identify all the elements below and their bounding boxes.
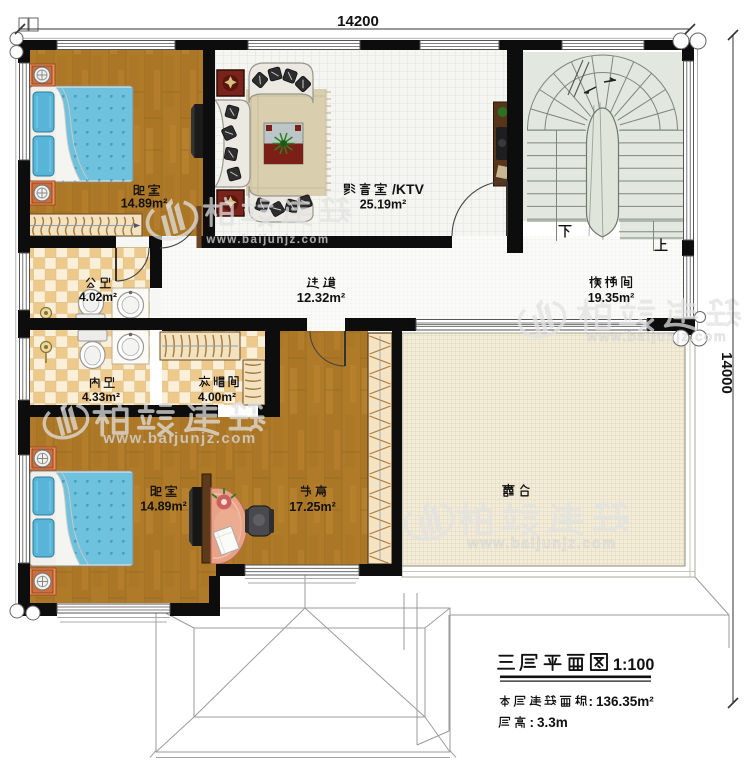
svg-text:4.02m²: 4.02m²: [79, 290, 117, 304]
svg-text:/KTV: /KTV: [392, 181, 425, 197]
svg-text::: :: [589, 694, 594, 709]
svg-text:4.00m²: 4.00m²: [198, 390, 236, 404]
svg-text:4.33m²: 4.33m²: [82, 390, 120, 404]
svg-text:17.25m²: 17.25m²: [289, 500, 336, 514]
svg-text:25.19m²: 25.19m²: [360, 198, 407, 212]
svg-text:14200: 14200: [337, 13, 379, 30]
svg-text:www.baijunjz.com: www.baijunjz.com: [586, 329, 728, 344]
svg-text:1:100: 1:100: [613, 656, 654, 674]
svg-text::: :: [530, 715, 535, 730]
svg-text:14000: 14000: [718, 352, 735, 394]
svg-text:12.32m²: 12.32m²: [297, 290, 346, 305]
svg-text:www.baijunjz.com: www.baijunjz.com: [466, 536, 616, 552]
svg-text:19.35m²: 19.35m²: [588, 291, 635, 305]
svg-text:www.baijunjz.com: www.baijunjz.com: [205, 234, 329, 246]
svg-text:www.baijunjz.com: www.baijunjz.com: [102, 430, 256, 447]
svg-text:136.35m²: 136.35m²: [596, 694, 654, 709]
svg-text:3.3m: 3.3m: [537, 715, 568, 730]
svg-text:14.89m²: 14.89m²: [121, 197, 168, 211]
svg-text:14.89m²: 14.89m²: [140, 500, 187, 514]
